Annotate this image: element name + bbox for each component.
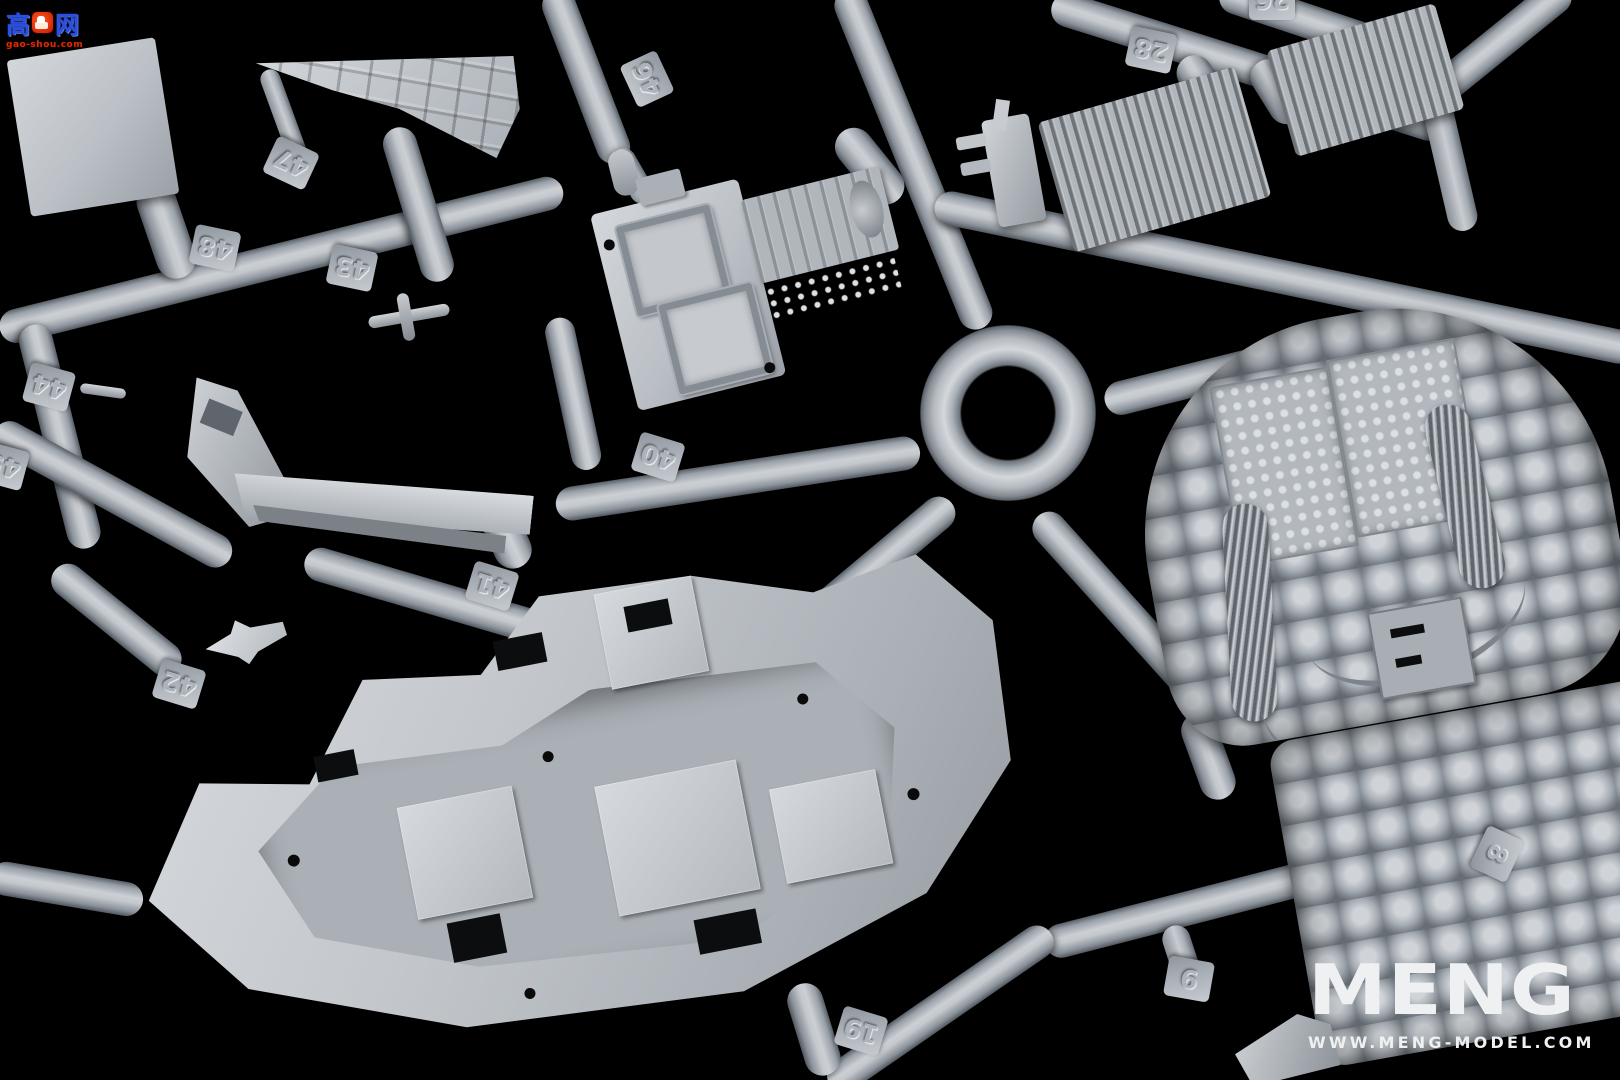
hull-cupola [594, 576, 710, 690]
part-number-tag-46: 46 [619, 50, 675, 109]
watermark: 高 网 gao-shou.com [6, 5, 83, 50]
part-number-tag-9: 9 [1163, 955, 1215, 1002]
instrument-panel-part [575, 114, 929, 421]
sprue-runner [537, 0, 635, 169]
meng-logo: MENG [1308, 955, 1606, 1025]
watermark-cn-left: 高 [6, 5, 30, 40]
sprue-ring [903, 308, 1113, 518]
thumb-up-icon [32, 12, 53, 33]
watermark-cn-right: 网 [55, 5, 79, 40]
meng-logo-block: MENG WWW.MENG-MODEL.COM [1308, 955, 1595, 1052]
sprue-runner [553, 434, 922, 523]
square-plate-part [7, 37, 180, 217]
sprue-runner [783, 979, 845, 1080]
watermark-url: gao-shou.com [6, 40, 83, 50]
part-number-tag-26: 26 [1249, 0, 1295, 20]
meng-website: WWW.MENG-MODEL.COM [1308, 1033, 1595, 1052]
junction-box [1367, 597, 1477, 700]
sprue-runner [542, 315, 604, 473]
hull-tub-part [96, 506, 1063, 1080]
louver-grille-part [1037, 66, 1271, 252]
part-number-tag-43: 43 [325, 244, 378, 293]
sprue-runner [0, 859, 146, 918]
part-number-tag-28: 28 [1124, 26, 1177, 75]
sprue-runner [1421, 99, 1480, 234]
part-number-tag-47: 47 [262, 135, 321, 191]
pin-part [80, 383, 127, 399]
bracket-part [163, 353, 524, 581]
sprue-photo: 48 43 47 46 44 45 42 41 40 28 26 8 9 19 … [0, 0, 1620, 1080]
